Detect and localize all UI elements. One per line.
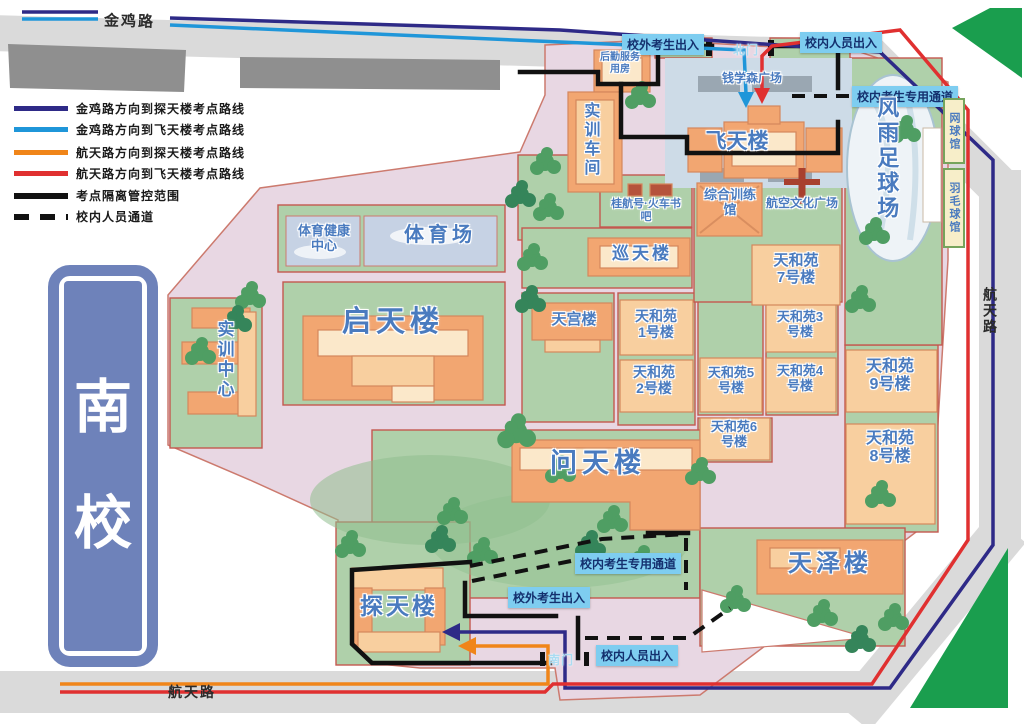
label-tianheyuan-9: 天和苑9号楼 bbox=[862, 358, 918, 395]
offcampus-building bbox=[8, 44, 186, 92]
tag-internal-candidates-channel-south: 校内考生专用通道 bbox=[575, 553, 681, 574]
legend-item: 校内人员通道 bbox=[14, 208, 154, 225]
label-tianheyuan-8: 天和苑8号楼 bbox=[862, 430, 918, 467]
tag-internal-staff-north: 校内人员出入 bbox=[800, 32, 882, 53]
label-guihang-shuba: 桂航号·火车书吧 bbox=[610, 198, 682, 223]
label-tianheyuan-3: 天和苑3号楼 bbox=[776, 310, 824, 340]
label-wangqiuguan: 网球馆 bbox=[943, 98, 965, 164]
campus-name-char: 南 bbox=[74, 379, 132, 437]
legend-label: 金鸡路方向到探天楼考点路线 bbox=[76, 100, 245, 117]
label-qianxuesen-square: 钱学森广场 bbox=[710, 72, 794, 86]
gate-south: 南门 bbox=[548, 651, 574, 668]
label-shixun-zhongxin: 实训中心 bbox=[214, 320, 234, 400]
campus-name-char: 校 bbox=[74, 495, 132, 553]
gate-north: 北门 bbox=[733, 41, 759, 58]
legend-swatch-black bbox=[14, 193, 68, 199]
label-qitianlou: 启天楼 bbox=[328, 306, 458, 339]
label-tianheyuan-5: 天和苑5号楼 bbox=[707, 366, 755, 396]
legend-swatch-orange bbox=[14, 150, 68, 155]
label-wentianlou: 问天楼 bbox=[528, 448, 668, 479]
label-hangkong-wenhua: 航空文化广场 bbox=[756, 197, 848, 211]
label-tianzelou: 天泽楼 bbox=[766, 550, 894, 578]
label-houqin: 后勤服务用房 bbox=[596, 52, 644, 75]
label-tiyu-jiankang: 体育健康中心 bbox=[294, 224, 354, 254]
legend-label: 校内人员通道 bbox=[76, 208, 154, 225]
stand bbox=[923, 128, 941, 222]
campus-name-banner: 南 校 bbox=[48, 265, 158, 667]
legend-swatch-red bbox=[14, 171, 68, 176]
road-label-jinji: 金鸡路 bbox=[104, 9, 156, 31]
campus-exam-route-map: 金鸡路方向到探天楼考点路线 金鸡路方向到飞天楼考点路线 航天路方向到探天楼考点路… bbox=[0, 0, 1024, 724]
label-tianheyuan-2: 天和苑2号楼 bbox=[630, 364, 678, 396]
legend-item: 航天路方向到探天楼考点路线 bbox=[14, 144, 245, 161]
label-xuntianlou: 巡天楼 bbox=[600, 244, 684, 264]
label-tianheyuan-4: 天和苑4号楼 bbox=[776, 364, 824, 394]
legend-label: 航天路方向到飞天楼考点路线 bbox=[76, 165, 245, 182]
legend-label: 考点隔离管控范围 bbox=[76, 187, 180, 204]
label-tianheyuan-7: 天和苑7号楼 bbox=[770, 252, 822, 287]
label-tianheyuan-6: 天和苑6号楼 bbox=[710, 420, 758, 450]
legend-label: 金鸡路方向到飞天楼考点路线 bbox=[76, 121, 245, 138]
legend-swatch-navy bbox=[14, 106, 68, 111]
green-corner-topright bbox=[952, 8, 1022, 78]
road-label-hangtian-bottom: 航天路 bbox=[168, 682, 216, 702]
label-zonghe-xunlianguan: 综合训练馆 bbox=[700, 188, 760, 218]
tag-internal-staff-south: 校内人员出入 bbox=[596, 645, 678, 666]
legend-item: 航天路方向到飞天楼考点路线 bbox=[14, 165, 245, 182]
offcampus-building bbox=[240, 57, 500, 90]
legend-label: 航天路方向到探天楼考点路线 bbox=[76, 144, 245, 161]
road-label-hangtian-right: 航天路 bbox=[980, 287, 1000, 335]
label-yumaoqiuguan: 羽毛球馆 bbox=[943, 168, 965, 248]
label-tiangonglou: 天宫楼 bbox=[538, 311, 610, 328]
legend-swatch-dashed bbox=[14, 214, 68, 220]
tag-external-candidates-south: 校外考生出入 bbox=[508, 587, 590, 608]
legend-item: 金鸡路方向到探天楼考点路线 bbox=[14, 100, 245, 117]
legend-swatch-blue bbox=[14, 127, 68, 132]
label-shixun-chejian: 实训车间 bbox=[580, 102, 598, 178]
label-tantianlou: 探天楼 bbox=[346, 593, 452, 619]
legend-item: 考点隔离管控范围 bbox=[14, 187, 180, 204]
label-fengyu-zuqiuchang: 风雨足球场 bbox=[874, 96, 899, 221]
label-feitian: 飞天楼 bbox=[692, 130, 782, 154]
legend-item: 金鸡路方向到飞天楼考点路线 bbox=[14, 121, 245, 138]
label-tiyuchang: 体育场 bbox=[388, 224, 492, 247]
label-tianheyuan-1: 天和苑1号楼 bbox=[632, 308, 680, 340]
campus-name-inner: 南 校 bbox=[64, 281, 142, 651]
